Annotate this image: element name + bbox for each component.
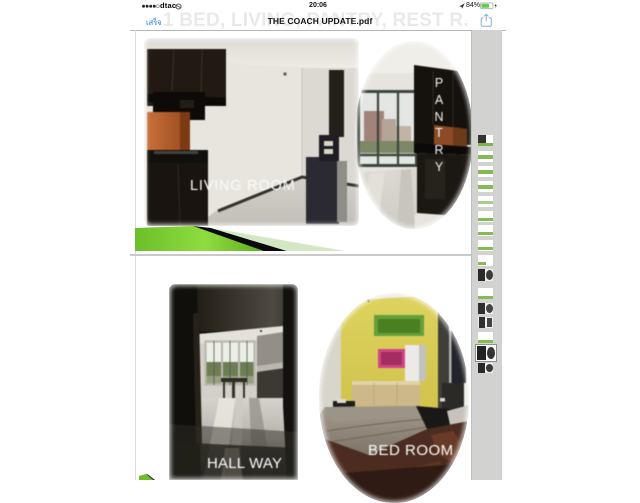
svg-text:Y: Y xyxy=(435,160,444,174)
svg-text:A: A xyxy=(435,93,444,107)
svg-text:BED ROOM: BED ROOM xyxy=(368,442,454,459)
svg-text:R: R xyxy=(434,143,443,157)
svg-text:LIVING ROOM: LIVING ROOM xyxy=(190,178,295,194)
svg-text:P: P xyxy=(435,76,443,90)
svg-text:N: N xyxy=(434,110,443,124)
svg-text:T: T xyxy=(435,126,443,140)
svg-text:HALL WAY: HALL WAY xyxy=(207,455,282,472)
